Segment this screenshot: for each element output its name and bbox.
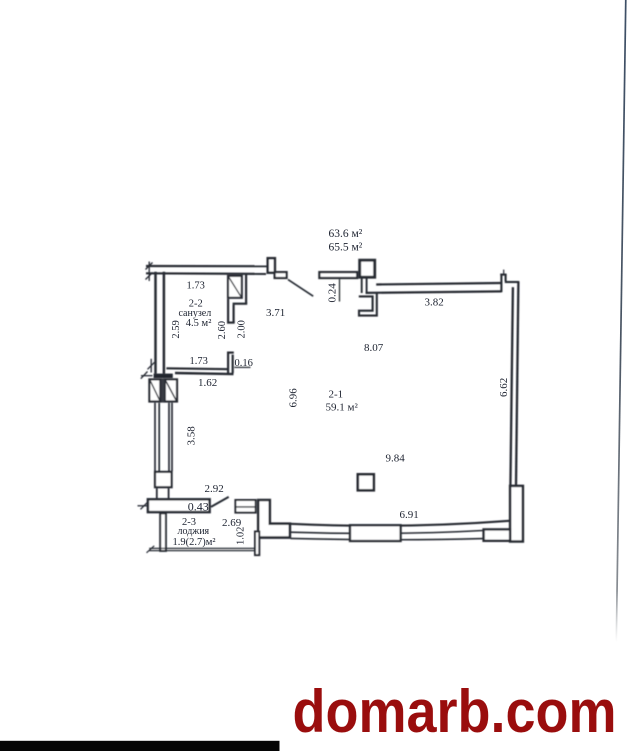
svg-text:3.82: 3.82 [425,297,444,309]
svg-text:1.9(2.7)м²: 1.9(2.7)м² [173,537,216,548]
svg-text:0.24: 0.24 [327,283,339,303]
svg-text:2.00: 2.00 [237,320,248,338]
svg-text:лоджия: лоджия [178,526,210,537]
svg-text:8.07: 8.07 [364,342,384,354]
svg-text:65.5 м²: 65.5 м² [329,242,363,254]
svg-text:6.96: 6.96 [288,388,300,408]
svg-text:2.59: 2.59 [171,320,182,338]
svg-text:1.73: 1.73 [187,281,205,292]
svg-text:2-1: 2-1 [329,389,344,401]
svg-text:3.71: 3.71 [266,307,285,319]
svg-text:0.43: 0.43 [188,500,209,514]
svg-text:1.73: 1.73 [190,356,208,367]
svg-text:3.58: 3.58 [186,426,198,446]
svg-text:1.62: 1.62 [198,377,217,389]
svg-text:59.1 м²: 59.1 м² [326,402,359,414]
svg-text:6.91: 6.91 [400,509,419,521]
svg-text:2.60: 2.60 [217,321,228,339]
svg-text:0.16: 0.16 [235,358,253,369]
svg-text:4.5 м²: 4.5 м² [186,318,212,329]
svg-text:2.92: 2.92 [205,483,224,495]
svg-text:1.02: 1.02 [236,527,247,545]
svg-text:6.62: 6.62 [498,378,510,397]
svg-text:63.6 м²: 63.6 м² [329,228,363,240]
svg-text:domarb.com: domarb.com [293,678,617,745]
svg-text:9.84: 9.84 [386,453,406,465]
